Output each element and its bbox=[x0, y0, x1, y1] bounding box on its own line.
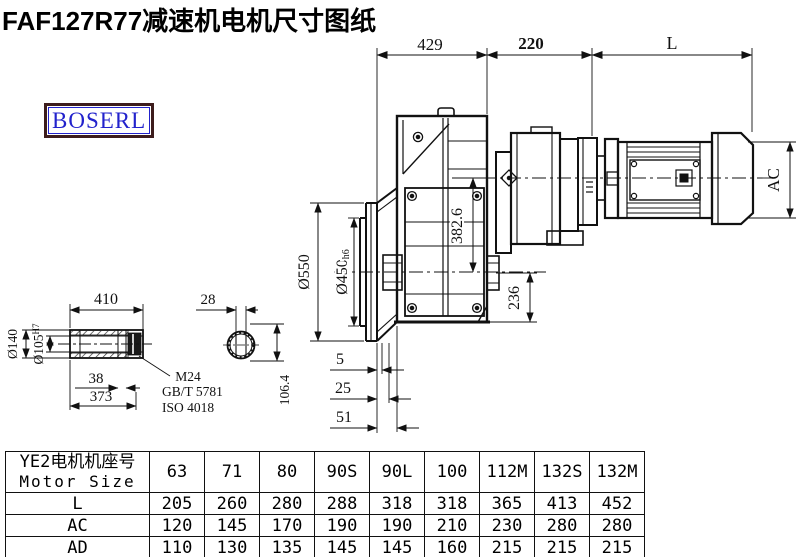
table-cell: 215 bbox=[535, 537, 590, 557]
table-cell: 135 bbox=[260, 537, 315, 557]
table-cell: 205 bbox=[150, 493, 205, 515]
table-cell: 318 bbox=[370, 493, 425, 515]
table-cell: 280 bbox=[260, 493, 315, 515]
table-cell: 190 bbox=[370, 515, 425, 537]
gearbox-housing bbox=[383, 108, 499, 322]
motor-size-table-body: YE2电机机座号 Motor Size 63718090S90L100112M1… bbox=[6, 452, 645, 557]
table-cell: 288 bbox=[315, 493, 370, 515]
table-row-AD: AD110130135145145160215215215 bbox=[6, 537, 645, 557]
table-cell: 145 bbox=[370, 537, 425, 557]
dim-chain-top bbox=[377, 48, 752, 202]
table-cell: 160 bbox=[425, 537, 480, 557]
table-cell: 145 bbox=[205, 515, 260, 537]
dim-220: 220 bbox=[518, 34, 544, 53]
drawing-sheet: FAF127R77减速机电机尺寸图纸 BOSERL 429 220 L bbox=[0, 0, 800, 557]
dim-51: 51 bbox=[336, 409, 352, 426]
note-gbt: GB/T 5781 bbox=[162, 384, 223, 399]
table-cell: 130 bbox=[205, 537, 260, 557]
dim-38: 38 bbox=[89, 371, 104, 387]
column-header-100: 100 bbox=[425, 452, 480, 493]
row-label-L: L bbox=[6, 493, 150, 515]
dim-ac-label: AC bbox=[764, 168, 783, 192]
table-cell: 190 bbox=[315, 515, 370, 537]
table-cell: 413 bbox=[535, 493, 590, 515]
header-cn: YE2电机机座号 bbox=[6, 453, 149, 472]
table-cell: 280 bbox=[535, 515, 590, 537]
table-cell: 170 bbox=[260, 515, 315, 537]
table-header-row: YE2电机机座号 Motor Size 63718090S90L100112M1… bbox=[6, 452, 645, 493]
header-en: Motor Size bbox=[6, 472, 149, 491]
table-cell: 110 bbox=[150, 537, 205, 557]
column-header-112M: 112M bbox=[480, 452, 535, 493]
table-cell: 452 bbox=[590, 493, 645, 515]
dim-429: 429 bbox=[417, 35, 443, 54]
dim-236-label: 236 bbox=[506, 286, 523, 310]
table-header-motor-size: YE2电机机座号 Motor Size bbox=[6, 452, 150, 493]
dim-140: Ø140 bbox=[5, 329, 20, 359]
note-iso: ISO 4018 bbox=[162, 400, 214, 415]
section-view bbox=[196, 306, 284, 361]
column-header-90S: 90S bbox=[315, 452, 370, 493]
column-header-90L: 90L bbox=[370, 452, 425, 493]
table-cell: 145 bbox=[315, 537, 370, 557]
output-flange bbox=[360, 188, 397, 341]
dim-450: Ø450h6 bbox=[334, 249, 352, 295]
dim-5: 5 bbox=[336, 351, 344, 368]
column-header-63: 63 bbox=[150, 452, 205, 493]
column-header-132S: 132S bbox=[535, 452, 590, 493]
table-cell: 230 bbox=[480, 515, 535, 537]
table-row-L: L205260280288318318365413452 bbox=[6, 493, 645, 515]
table-cell: 280 bbox=[590, 515, 645, 537]
motor-size-table: YE2电机机座号 Motor Size 63718090S90L100112M1… bbox=[5, 451, 645, 557]
dim-410: 410 bbox=[94, 291, 118, 308]
table-row-AC: AC120145170190190210230280280 bbox=[6, 515, 645, 537]
dim-105: Ø105H7 bbox=[31, 323, 46, 364]
dim-373: 373 bbox=[90, 389, 113, 405]
dim-L: L bbox=[667, 33, 678, 53]
table-cell: 365 bbox=[480, 493, 535, 515]
note-m24: M24 bbox=[175, 369, 201, 384]
input-adapter bbox=[496, 127, 605, 253]
centerlines bbox=[334, 178, 772, 272]
row-label-AC: AC bbox=[6, 515, 150, 537]
table-cell: 120 bbox=[150, 515, 205, 537]
dim-550: Ø550 bbox=[296, 254, 313, 290]
table-cell: 210 bbox=[425, 515, 480, 537]
table-cell: 318 bbox=[425, 493, 480, 515]
motor bbox=[605, 133, 753, 224]
technical-drawing: 429 220 L AC bbox=[0, 0, 800, 450]
dim-28: 28 bbox=[201, 292, 216, 308]
column-header-71: 71 bbox=[205, 452, 260, 493]
row-label-AD: AD bbox=[6, 537, 150, 557]
table-cell: 215 bbox=[590, 537, 645, 557]
table-cell: 215 bbox=[480, 537, 535, 557]
motor-panel-bolts bbox=[631, 161, 698, 198]
dim-382-label: 382.6 bbox=[449, 208, 466, 244]
dim-25: 25 bbox=[335, 380, 351, 397]
column-header-80: 80 bbox=[260, 452, 315, 493]
table-cell: 260 bbox=[205, 493, 260, 515]
dim-106: 106.4 bbox=[277, 375, 292, 406]
column-header-132M: 132M bbox=[590, 452, 645, 493]
